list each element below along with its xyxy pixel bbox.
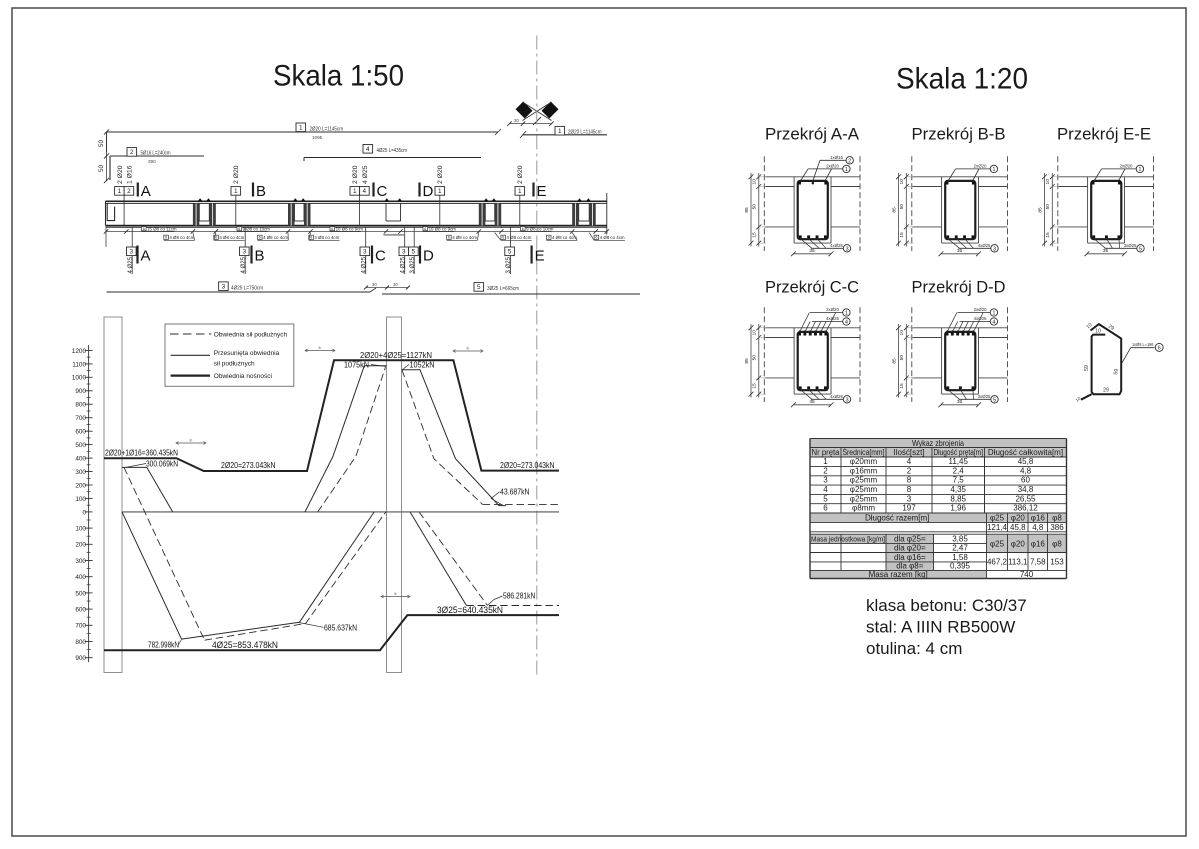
svg-text:5Ø16 L=240cm: 5Ø16 L=240cm xyxy=(141,151,171,157)
svg-text:10: 10 xyxy=(1045,179,1051,185)
svg-text:Długość całkowita[m]: Długość całkowita[m] xyxy=(988,448,1063,457)
svg-text:1: 1 xyxy=(823,457,828,466)
svg-text:φ8mm: φ8mm xyxy=(852,504,875,513)
svg-text:1: 1 xyxy=(299,125,303,132)
svg-text:4 Ø25: 4 Ø25 xyxy=(362,165,369,184)
svg-text:685.637kN: 685.637kN xyxy=(324,623,357,632)
svg-text:4: 4 xyxy=(992,320,995,326)
svg-text:3: 3 xyxy=(845,397,848,403)
svg-text:15: 15 xyxy=(752,232,758,238)
svg-text:35: 35 xyxy=(957,399,963,405)
svg-text:5: 5 xyxy=(508,249,512,256)
svg-text:stal: A IIIN RB500W: stal: A IIIN RB500W xyxy=(866,618,1015,637)
svg-text:4: 4 xyxy=(366,146,370,153)
svg-text:4: 4 xyxy=(907,457,912,466)
svg-text:Średnica[mm]: Średnica[mm] xyxy=(843,448,885,457)
svg-text:2: 2 xyxy=(848,158,851,164)
svg-text:113,1: 113,1 xyxy=(1008,558,1028,567)
svg-text:10: 10 xyxy=(1095,329,1101,335)
svg-text:Przesunięta obwiednia: Przesunięta obwiednia xyxy=(214,350,280,357)
svg-text:35: 35 xyxy=(1103,248,1109,254)
svg-text:3 Ø25: 3 Ø25 xyxy=(409,257,416,274)
svg-text:10 Ø8 co 9cm: 10 Ø8 co 9cm xyxy=(429,226,457,231)
svg-text:1: 1 xyxy=(518,188,522,195)
svg-text:15 Ø8 co 11cm: 15 Ø8 co 11cm xyxy=(147,226,177,231)
svg-text:φ25: φ25 xyxy=(990,540,1005,549)
svg-text:386,12: 386,12 xyxy=(1013,504,1038,513)
svg-text:900: 900 xyxy=(75,655,86,662)
svg-text:2xØ20: 2xØ20 xyxy=(826,164,839,169)
svg-text:50: 50 xyxy=(1045,204,1051,210)
svg-text:586.281kN: 586.281kN xyxy=(503,592,535,601)
svg-text:600: 600 xyxy=(75,607,86,614)
svg-text:15: 15 xyxy=(752,383,758,389)
svg-text:Masa jednostkowa [kg/m]: Masa jednostkowa [kg/m] xyxy=(811,534,885,543)
svg-text:3: 3 xyxy=(222,284,226,291)
svg-text:lb: lb xyxy=(319,346,322,350)
svg-text:4xØ25: 4xØ25 xyxy=(826,316,839,321)
svg-text:782.998kN: 782.998kN xyxy=(148,641,179,650)
svg-text:4 Ø8 co 4cm: 4 Ø8 co 4cm xyxy=(552,235,577,240)
svg-text:45,8: 45,8 xyxy=(1018,457,1034,466)
svg-text:lb: lb xyxy=(394,592,397,596)
svg-text:45,8: 45,8 xyxy=(1010,523,1026,532)
svg-text:4xØ25: 4xØ25 xyxy=(830,394,843,399)
svg-text:3Ø25=640.435kN: 3Ø25=640.435kN xyxy=(437,605,503,616)
svg-text:6: 6 xyxy=(522,227,524,231)
svg-text:3,85: 3,85 xyxy=(952,534,968,543)
svg-text:35: 35 xyxy=(957,248,963,254)
svg-text:2,47: 2,47 xyxy=(952,544,968,553)
svg-text:43.687kN: 43.687kN xyxy=(500,488,530,497)
svg-text:30: 30 xyxy=(372,282,377,287)
svg-text:1: 1 xyxy=(558,128,562,135)
svg-text:1: 1 xyxy=(438,188,442,195)
svg-text:5: 5 xyxy=(1139,246,1142,252)
svg-text:1075kN: 1075kN xyxy=(344,360,369,369)
svg-text:85: 85 xyxy=(892,358,898,364)
svg-text:Przekrój E-E: Przekrój E-E xyxy=(1057,125,1151,144)
svg-text:2: 2 xyxy=(130,149,134,156)
svg-text:4,8: 4,8 xyxy=(1020,466,1032,475)
svg-text:2xØ20: 2xØ20 xyxy=(1120,164,1133,169)
svg-text:1xØ8 L=196: 1xØ8 L=196 xyxy=(1132,342,1154,348)
svg-text:sił podłużnych: sił podłużnych xyxy=(214,360,255,367)
svg-text:6: 6 xyxy=(448,236,450,240)
svg-text:600: 600 xyxy=(75,429,86,436)
svg-text:Wykaz zbrojenia: Wykaz zbrojenia xyxy=(912,438,964,448)
svg-text:B: B xyxy=(256,183,266,200)
svg-text:6: 6 xyxy=(502,236,504,240)
svg-text:2,4: 2,4 xyxy=(953,466,965,475)
svg-text:15: 15 xyxy=(899,383,905,389)
svg-text:A: A xyxy=(141,183,151,200)
svg-text:6: 6 xyxy=(165,236,167,240)
svg-text:4 Ø25: 4 Ø25 xyxy=(360,257,367,274)
svg-text:4 Ø25: 4 Ø25 xyxy=(127,257,134,274)
svg-text:1: 1 xyxy=(992,167,995,173)
svg-text:E: E xyxy=(535,248,545,265)
svg-text:2Ø20=273.043kN: 2Ø20=273.043kN xyxy=(500,461,555,470)
svg-text:1: 1 xyxy=(353,188,357,195)
svg-text:2 Ø20: 2 Ø20 xyxy=(117,165,124,184)
svg-text:2xØ20: 2xØ20 xyxy=(974,164,987,169)
svg-text:5: 5 xyxy=(477,284,481,291)
svg-text:2xØ20: 2xØ20 xyxy=(826,307,839,312)
svg-text:2Ø20 L=1145cm: 2Ø20 L=1145cm xyxy=(568,130,602,136)
svg-text:4: 4 xyxy=(823,485,828,494)
svg-text:3: 3 xyxy=(363,249,367,256)
svg-text:2: 2 xyxy=(823,466,828,475)
svg-text:1xØ16: 1xØ16 xyxy=(830,155,843,160)
svg-text:15: 15 xyxy=(899,232,905,238)
svg-text:8: 8 xyxy=(907,485,912,494)
svg-text:dla φ25=: dla φ25= xyxy=(894,534,926,543)
svg-text:C: C xyxy=(375,248,386,265)
svg-text:6: 6 xyxy=(424,227,426,231)
svg-text:4 Ø8 co 4cm: 4 Ø8 co 4cm xyxy=(169,235,194,240)
svg-text:9 Ø8 co 10cm: 9 Ø8 co 10cm xyxy=(526,226,554,231)
svg-text:1: 1 xyxy=(992,311,995,317)
svg-text:2 Ø20: 2 Ø20 xyxy=(517,165,524,184)
svg-text:6: 6 xyxy=(1158,346,1161,352)
svg-text:10: 10 xyxy=(899,330,905,336)
svg-text:4 Ø25: 4 Ø25 xyxy=(240,257,247,274)
svg-text:Obwiednia nośności: Obwiednia nośności xyxy=(214,373,272,380)
svg-text:153: 153 xyxy=(1050,558,1064,567)
svg-text:Masa razem [kg]: Masa razem [kg] xyxy=(869,570,928,579)
svg-text:1: 1 xyxy=(1138,167,1141,173)
svg-text:2Ø20+4Ø25=1127kN: 2Ø20+4Ø25=1127kN xyxy=(360,351,432,360)
svg-text:50: 50 xyxy=(899,355,905,361)
svg-text:4 Ø8 co 4cm: 4 Ø8 co 4cm xyxy=(452,235,477,240)
svg-text:59: 59 xyxy=(1084,365,1090,371)
svg-text:φ25mm: φ25mm xyxy=(850,476,878,485)
svg-text:6: 6 xyxy=(215,236,217,240)
svg-text:200: 200 xyxy=(75,542,86,549)
svg-text:50: 50 xyxy=(752,204,758,210)
svg-text:Obwiednia sił podłużnych: Obwiednia sił podłużnych xyxy=(214,332,288,339)
svg-text:E: E xyxy=(537,183,547,200)
svg-text:C: C xyxy=(377,183,388,200)
svg-text:3: 3 xyxy=(845,246,848,252)
svg-text:300: 300 xyxy=(75,469,86,476)
svg-text:3 Ø25: 3 Ø25 xyxy=(505,257,512,274)
svg-text:D: D xyxy=(423,248,434,265)
svg-text:1: 1 xyxy=(234,188,238,195)
svg-text:3Ø25 L=665cm: 3Ø25 L=665cm xyxy=(487,286,519,292)
svg-text:Przekrój D-D: Przekrój D-D xyxy=(912,278,1006,297)
svg-text:A: A xyxy=(141,248,151,265)
svg-text:7,5: 7,5 xyxy=(953,476,965,485)
svg-text:Przekrój A-A: Przekrój A-A xyxy=(765,125,860,144)
svg-text:3: 3 xyxy=(402,249,406,256)
svg-text:3: 3 xyxy=(130,249,134,256)
svg-text:8,85: 8,85 xyxy=(950,494,966,503)
svg-text:700: 700 xyxy=(75,415,86,422)
svg-text:85: 85 xyxy=(892,207,898,213)
svg-text:15: 15 xyxy=(1045,232,1051,238)
svg-text:φ20mm: φ20mm xyxy=(850,457,878,466)
svg-text:Skala 1:50: Skala 1:50 xyxy=(273,60,404,93)
svg-text:85: 85 xyxy=(1038,207,1044,213)
svg-text:9 Ø8 co 10cm: 9 Ø8 co 10cm xyxy=(243,226,271,231)
svg-text:85: 85 xyxy=(744,358,750,364)
svg-text:26,55: 26,55 xyxy=(1015,494,1036,503)
svg-text:10: 10 xyxy=(752,179,758,185)
svg-text:900: 900 xyxy=(75,388,86,395)
svg-text:4Ø25 L=435cm: 4Ø25 L=435cm xyxy=(377,148,408,154)
svg-text:4xØ25: 4xØ25 xyxy=(974,316,987,321)
svg-text:φ20: φ20 xyxy=(1011,540,1026,549)
svg-text:1200: 1200 xyxy=(72,348,87,355)
svg-text:4xØ25: 4xØ25 xyxy=(830,243,843,248)
svg-text:8: 8 xyxy=(907,476,912,485)
svg-text:φ16mm: φ16mm xyxy=(850,466,878,475)
svg-text:200: 200 xyxy=(75,482,86,489)
svg-text:6: 6 xyxy=(143,227,145,231)
svg-text:1: 1 xyxy=(845,167,848,173)
svg-text:D: D xyxy=(423,183,434,200)
svg-text:4 Ø8 co 4cm: 4 Ø8 co 4cm xyxy=(314,235,339,240)
svg-text:100: 100 xyxy=(75,496,86,503)
svg-text:1100: 1100 xyxy=(72,361,86,368)
svg-text:4Ø25 L=750cm: 4Ø25 L=750cm xyxy=(231,285,263,291)
svg-text:500: 500 xyxy=(75,442,86,449)
svg-text:4 Ø8 co 4cm: 4 Ø8 co 4cm xyxy=(219,235,244,240)
svg-text:4Ø25=853.478kN: 4Ø25=853.478kN xyxy=(212,640,278,651)
svg-text:4 Ø8 co 4cm: 4 Ø8 co 4cm xyxy=(600,235,625,240)
svg-text:0: 0 xyxy=(82,509,86,516)
svg-text:lb: lb xyxy=(190,438,193,442)
svg-text:35: 35 xyxy=(809,248,815,254)
svg-text:φ20: φ20 xyxy=(1011,514,1026,523)
svg-text:dla φ20=: dla φ20= xyxy=(894,544,926,553)
svg-text:4: 4 xyxy=(363,188,367,195)
svg-text:29: 29 xyxy=(1103,388,1109,394)
svg-text:6: 6 xyxy=(310,236,312,240)
svg-text:400: 400 xyxy=(75,574,86,581)
svg-text:34,8: 34,8 xyxy=(1018,485,1034,494)
svg-text:4 Ø8 co 4cm: 4 Ø8 co 4cm xyxy=(263,235,288,240)
svg-text:30: 30 xyxy=(393,282,398,287)
svg-text:6: 6 xyxy=(331,227,333,231)
svg-text:740: 740 xyxy=(1020,570,1034,579)
svg-text:2: 2 xyxy=(907,466,912,475)
svg-text:30: 30 xyxy=(514,118,519,123)
svg-text:Ilość[szt]: Ilość[szt] xyxy=(893,448,924,457)
svg-text:197: 197 xyxy=(902,504,916,513)
svg-text:50: 50 xyxy=(98,140,105,147)
svg-text:290: 290 xyxy=(148,159,156,164)
svg-text:1: 1 xyxy=(845,311,848,317)
svg-text:59: 59 xyxy=(1113,369,1120,376)
svg-text:φ25mm: φ25mm xyxy=(850,485,878,494)
svg-text:1095: 1095 xyxy=(312,135,323,140)
svg-text:φ16: φ16 xyxy=(1031,514,1046,523)
svg-text:B: B xyxy=(255,248,265,265)
svg-text:4xØ25: 4xØ25 xyxy=(978,243,991,248)
svg-text:467,2: 467,2 xyxy=(987,558,1008,567)
svg-text:7,58: 7,58 xyxy=(1030,558,1046,567)
svg-text:100: 100 xyxy=(75,526,86,533)
svg-text:500: 500 xyxy=(75,590,86,597)
svg-text:4 Ø25: 4 Ø25 xyxy=(399,257,406,274)
svg-text:50: 50 xyxy=(899,204,905,210)
svg-text:1 Ø16: 1 Ø16 xyxy=(126,165,133,184)
svg-text:1000: 1000 xyxy=(72,375,87,382)
svg-text:3: 3 xyxy=(993,246,996,252)
svg-text:3: 3 xyxy=(907,494,912,503)
svg-text:Skala 1:20: Skala 1:20 xyxy=(896,63,1028,96)
svg-text:3xØ25: 3xØ25 xyxy=(978,394,991,399)
svg-text:2Ø20=273.043kN: 2Ø20=273.043kN xyxy=(221,461,276,470)
svg-text:2xØ20: 2xØ20 xyxy=(974,307,987,312)
svg-text:lb: lb xyxy=(467,346,470,350)
svg-text:2 Ø20: 2 Ø20 xyxy=(437,165,444,184)
svg-text:85: 85 xyxy=(744,207,750,213)
svg-text:3: 3 xyxy=(243,249,247,256)
svg-text:φ8: φ8 xyxy=(1052,514,1062,523)
svg-text:5: 5 xyxy=(823,494,828,503)
svg-text:300: 300 xyxy=(75,558,86,565)
svg-text:otulina: 4 cm: otulina: 4 cm xyxy=(866,639,962,658)
svg-text:6: 6 xyxy=(595,236,597,240)
svg-text:800: 800 xyxy=(75,402,86,409)
svg-text:3: 3 xyxy=(823,476,828,485)
svg-text:700: 700 xyxy=(75,623,86,630)
svg-text:1: 1 xyxy=(118,188,122,195)
svg-text:Przekrój B-B: Przekrój B-B xyxy=(912,125,1006,144)
svg-text:Długość razem[m]: Długość razem[m] xyxy=(865,514,929,523)
svg-text:5: 5 xyxy=(993,397,996,403)
svg-text:60: 60 xyxy=(1021,476,1030,485)
svg-text:Przekrój C-C: Przekrój C-C xyxy=(765,278,859,297)
svg-text:2Ø20 L=1145cm: 2Ø20 L=1145cm xyxy=(310,127,344,133)
svg-text:3xØ25: 3xØ25 xyxy=(1124,243,1137,248)
svg-text:1,96: 1,96 xyxy=(950,504,966,513)
svg-text:klasa betonu: C30/37: klasa betonu: C30/37 xyxy=(866,596,1027,615)
svg-text:4: 4 xyxy=(845,320,848,326)
svg-text:300.069kN: 300.069kN xyxy=(146,459,178,468)
svg-text:10 Ø8 co 9cm: 10 Ø8 co 9cm xyxy=(336,226,364,231)
svg-text:11,45: 11,45 xyxy=(948,457,968,466)
svg-text:6: 6 xyxy=(259,236,261,240)
svg-text:10: 10 xyxy=(752,330,758,336)
svg-text:6: 6 xyxy=(823,504,828,513)
svg-text:6: 6 xyxy=(238,227,240,231)
svg-text:φ8: φ8 xyxy=(1052,540,1062,549)
svg-text:0,395: 0,395 xyxy=(950,562,971,571)
svg-text:2 Ø20: 2 Ø20 xyxy=(352,165,359,184)
svg-text:121,4: 121,4 xyxy=(987,523,1008,532)
svg-text:4,8: 4,8 xyxy=(1032,523,1044,532)
svg-text:800: 800 xyxy=(75,639,86,646)
svg-text:φ25mm: φ25mm xyxy=(850,494,878,503)
svg-text:50: 50 xyxy=(98,165,105,172)
svg-text:50: 50 xyxy=(752,355,758,361)
svg-text:Nr pręta: Nr pręta xyxy=(812,448,841,457)
svg-text:φ16: φ16 xyxy=(1031,540,1046,549)
svg-text:10: 10 xyxy=(899,179,905,185)
svg-text:400: 400 xyxy=(75,456,86,463)
svg-text:2 Ø20: 2 Ø20 xyxy=(233,165,240,184)
svg-text:φ25: φ25 xyxy=(990,514,1005,523)
svg-text:Długość pręta[m]: Długość pręta[m] xyxy=(933,448,983,457)
svg-text:5: 5 xyxy=(412,249,416,256)
svg-text:6: 6 xyxy=(548,236,550,240)
svg-text:35: 35 xyxy=(809,399,815,405)
svg-text:2Ø20+1Ø16=360.435kN: 2Ø20+1Ø16=360.435kN xyxy=(105,449,178,458)
svg-text:4,35: 4,35 xyxy=(950,485,966,494)
svg-text:2: 2 xyxy=(127,188,131,195)
svg-text:1052kN: 1052kN xyxy=(410,361,435,370)
svg-text:386: 386 xyxy=(1050,523,1064,532)
